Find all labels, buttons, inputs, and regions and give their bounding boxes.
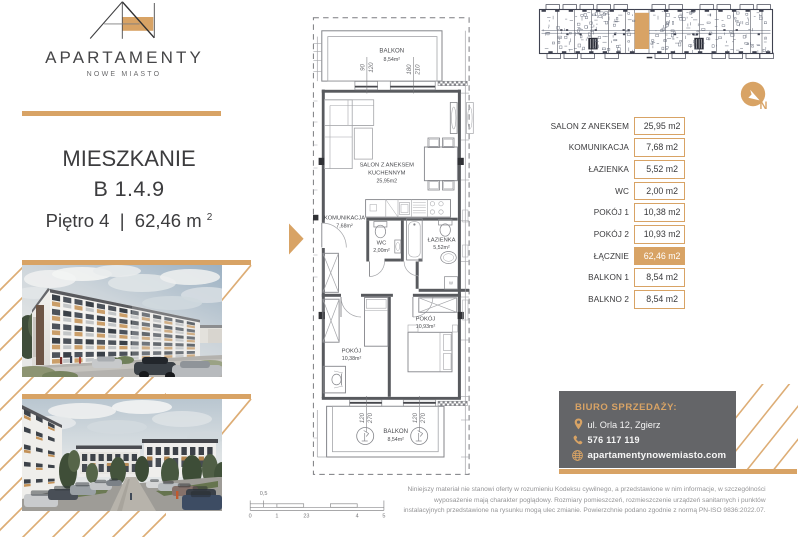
svg-text:0: 0 bbox=[249, 514, 252, 520]
svg-text:4: 4 bbox=[356, 514, 359, 520]
svg-text:1: 1 bbox=[275, 514, 278, 520]
svg-text:0,5: 0,5 bbox=[260, 491, 268, 497]
svg-text:23: 23 bbox=[303, 514, 309, 520]
